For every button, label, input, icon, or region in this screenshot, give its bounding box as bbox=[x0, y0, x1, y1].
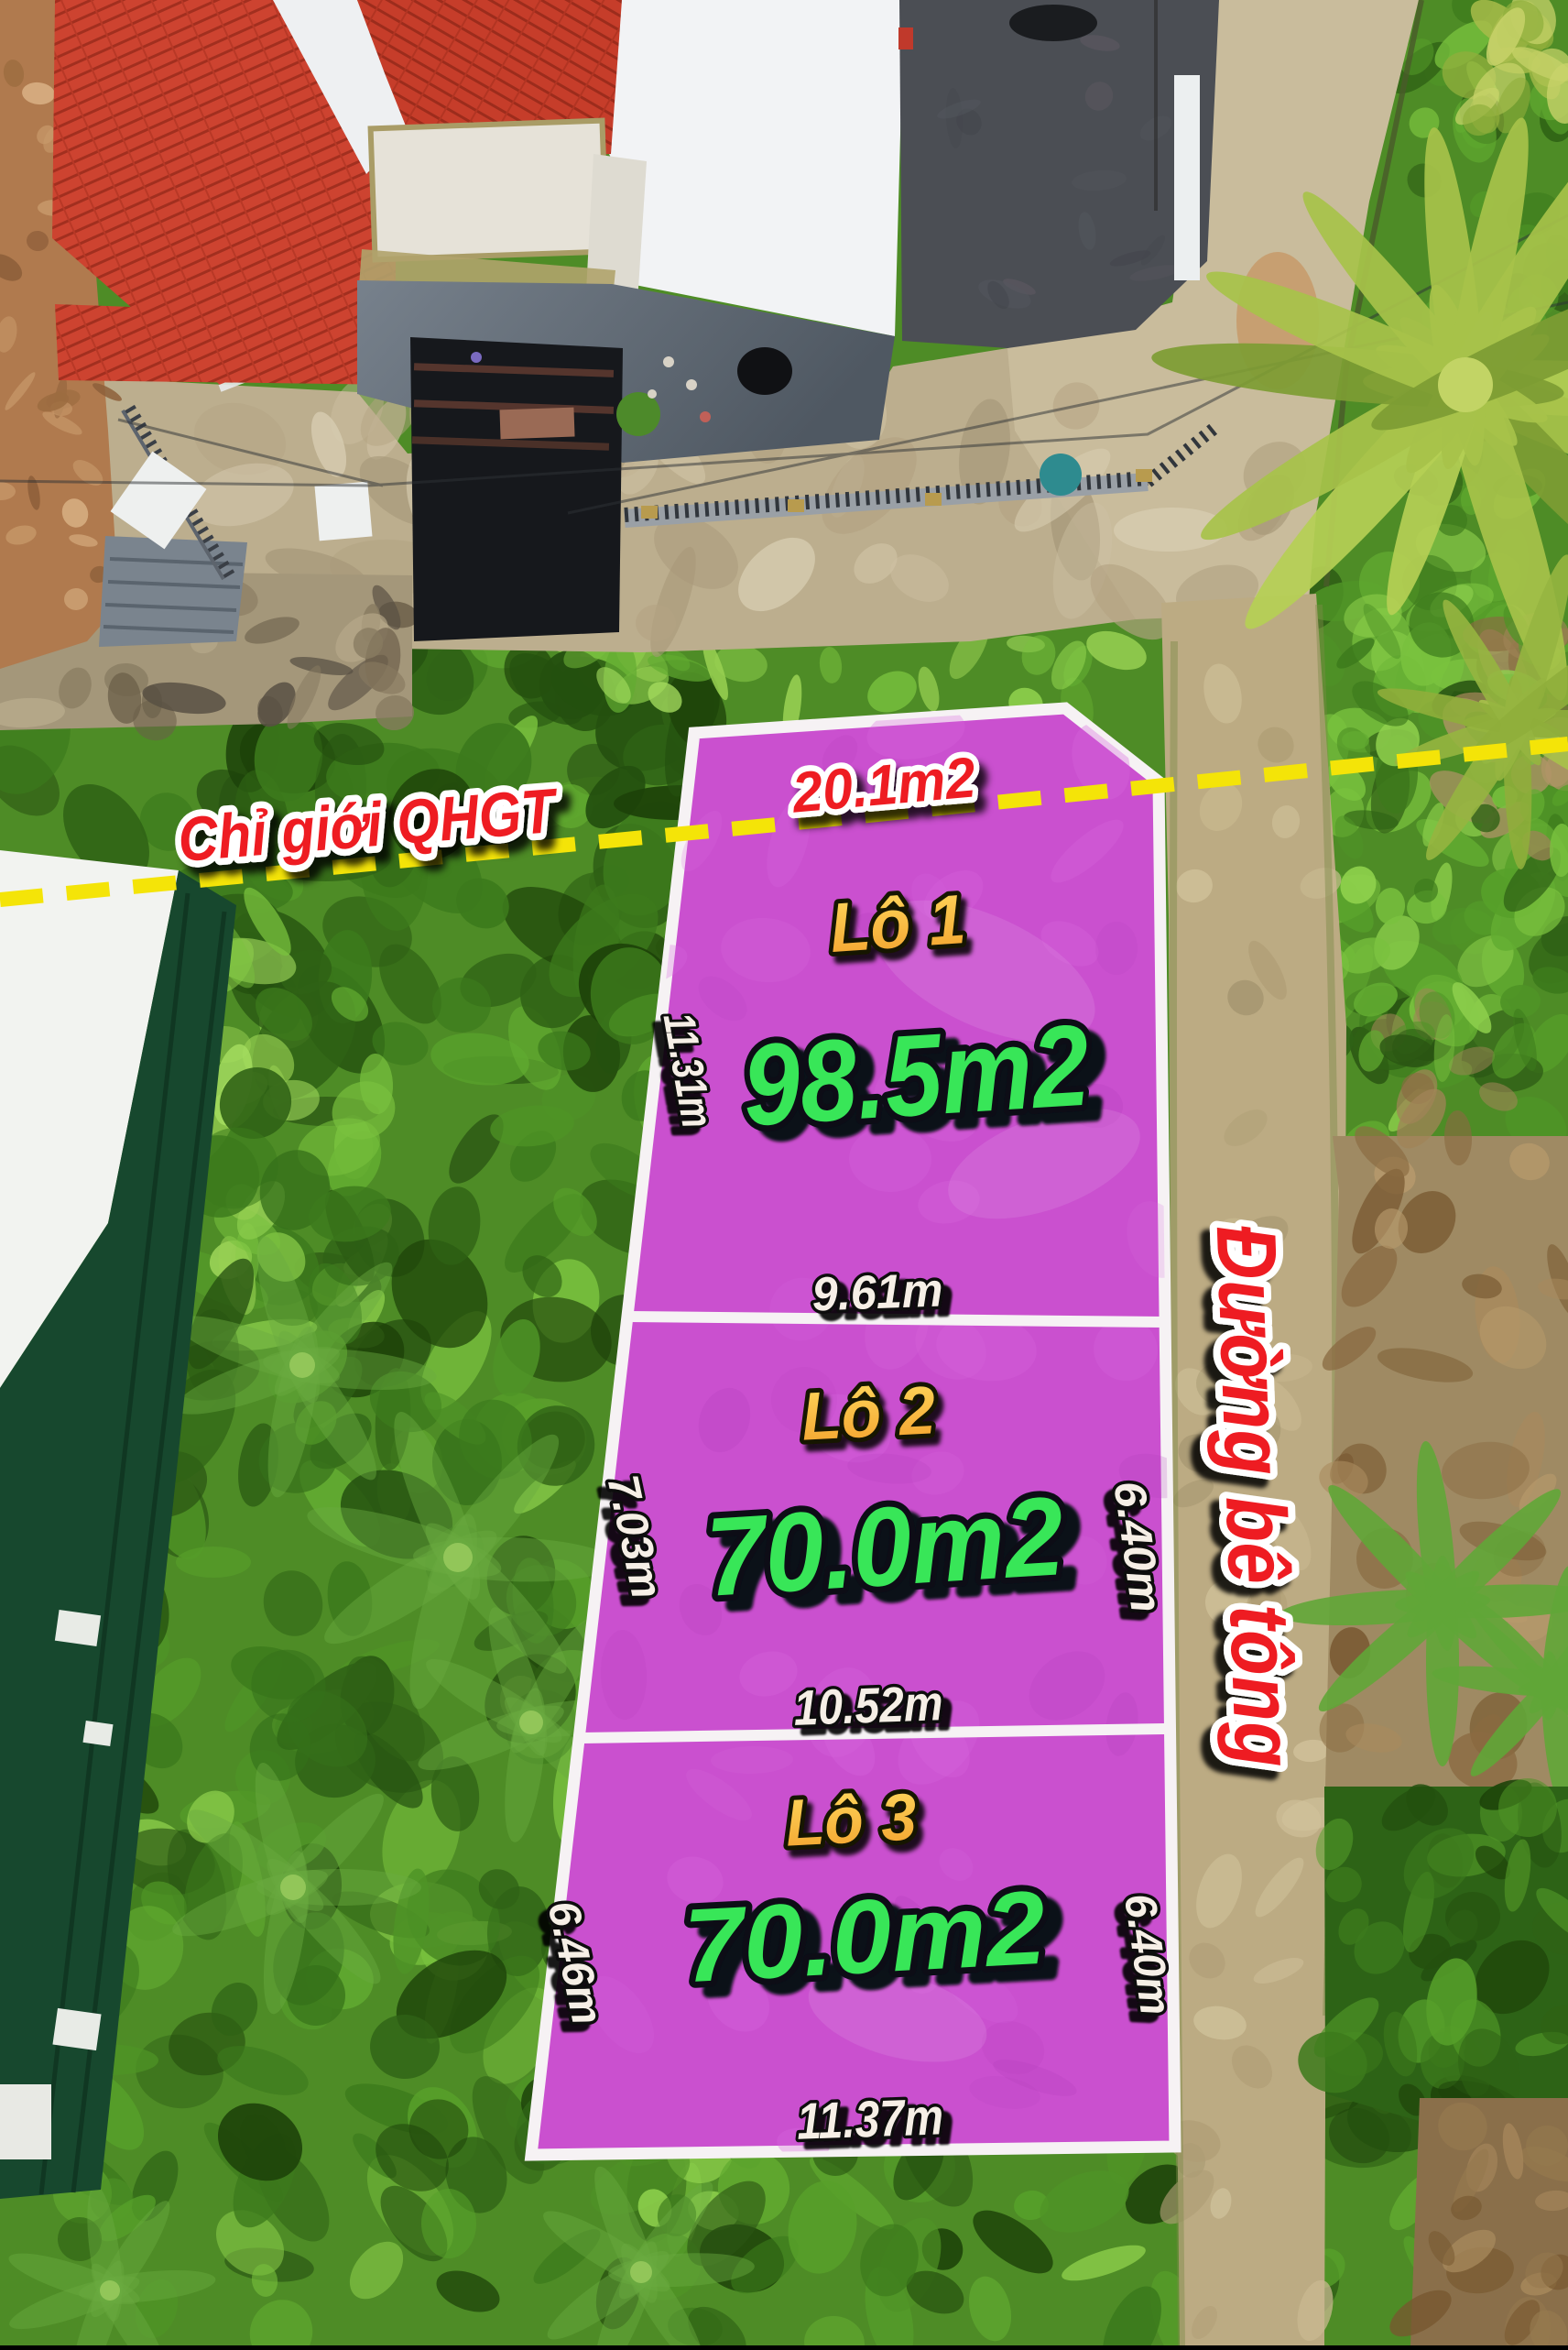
svg-text:10.52m: 10.52m bbox=[793, 1676, 944, 1736]
svg-text:9.61m: 9.61m bbox=[811, 1264, 944, 1322]
svg-text:98.5m2: 98.5m2 bbox=[739, 1000, 1093, 1151]
svg-text:Lô 1: Lô 1 bbox=[827, 880, 968, 967]
svg-text:Lô 2: Lô 2 bbox=[800, 1372, 937, 1455]
svg-text:Đường bê tông: Đường bê tông bbox=[1199, 1223, 1312, 1768]
svg-text:11.37m: 11.37m bbox=[796, 2087, 944, 2150]
svg-text:Lô 3: Lô 3 bbox=[784, 1780, 919, 1860]
svg-text:70.0m2: 70.0m2 bbox=[681, 1870, 1048, 2005]
svg-text:70.0m2: 70.0m2 bbox=[702, 1473, 1067, 1620]
